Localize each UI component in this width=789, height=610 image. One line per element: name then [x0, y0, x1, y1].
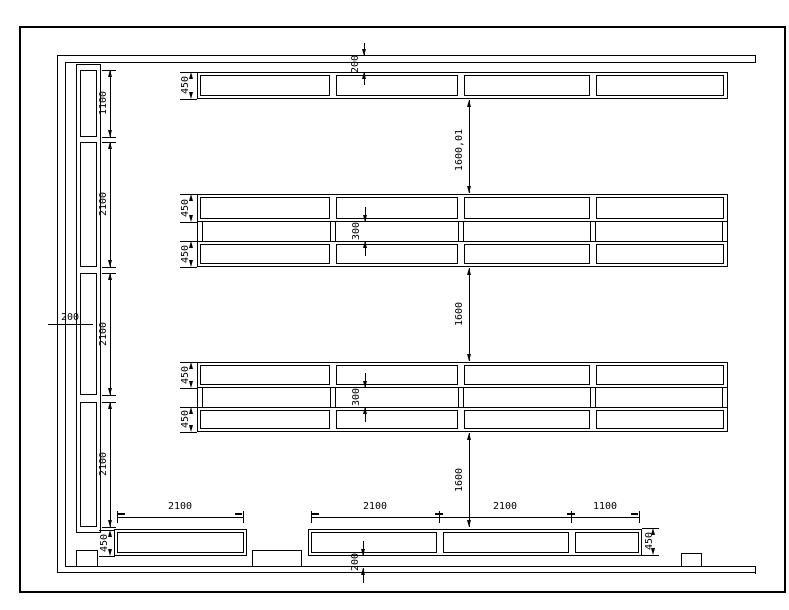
- arrowhead-up-icon: [362, 72, 366, 79]
- rack-bay: [464, 244, 590, 264]
- back-connector: [197, 388, 203, 407]
- dim-line: [117, 517, 243, 518]
- dim-line: [110, 402, 111, 527]
- dim-label-left-rack-1: 1100: [99, 73, 109, 133]
- dim-tick: [567, 513, 575, 515]
- dim-label-depth-row1: 450: [181, 55, 191, 115]
- extension-line: [102, 137, 116, 138]
- arrowhead-up-icon: [361, 568, 365, 575]
- arrowhead-down-icon: [467, 186, 471, 193]
- rack-bay: [464, 365, 590, 385]
- dim-line: [469, 268, 470, 361]
- extension-line: [243, 511, 244, 523]
- dim-line: [48, 324, 93, 325]
- arrowhead-down-icon: [363, 215, 367, 222]
- arrowhead-up-icon: [467, 100, 471, 107]
- dim-label-left-rack-2: 2100: [99, 174, 109, 234]
- dim-line: [469, 433, 470, 527]
- dim-line: [110, 142, 111, 267]
- dim-tick: [235, 513, 242, 515]
- back-connector: [458, 222, 464, 241]
- dim-line: [110, 70, 111, 137]
- rack-bay: [200, 197, 330, 219]
- dim-label-depth-bottom-left: 450: [100, 513, 110, 573]
- arrowhead-up-icon: [108, 402, 112, 409]
- dim-label-aisle-3: 1600: [455, 450, 465, 510]
- dim-label-back-gap-row2: 300: [352, 201, 362, 261]
- arrowhead-down-icon: [362, 49, 366, 56]
- arrowhead-up-icon: [467, 268, 471, 275]
- dim-label-depth-bottom-right: 450: [645, 511, 655, 571]
- back-connector: [330, 388, 336, 407]
- back-connector: [722, 222, 728, 241]
- extension-line: [639, 511, 640, 523]
- back-connector: [458, 388, 464, 407]
- rack-bay: [464, 197, 590, 219]
- dim-label-left-rack-4: 2100: [99, 434, 109, 494]
- room-wall-inner-line: [65, 62, 756, 567]
- dim-label-bottom-clearance: 200: [351, 532, 361, 592]
- back-connector: [590, 388, 596, 407]
- left-rack-bay: [80, 142, 97, 267]
- column-block: [252, 550, 302, 567]
- back-connector: [197, 222, 203, 241]
- dim-label-top-clearance: 200: [351, 34, 361, 94]
- arrowhead-down-icon: [108, 260, 112, 267]
- dim-label-depth-row2-back: 450: [181, 224, 191, 284]
- wall-end-cap-top: [755, 55, 756, 63]
- arrowhead-down-icon: [108, 388, 112, 395]
- dim-line: [311, 517, 639, 518]
- dim-tick: [435, 513, 443, 515]
- cad-drawing-canvas: 200 1600,01 1600 1600 300 300 200 200 11…: [0, 0, 789, 610]
- dim-label-back-gap-row3: 300: [352, 367, 362, 427]
- dim-tick: [312, 513, 319, 515]
- rack-bay: [596, 75, 724, 96]
- left-rack-bay: [80, 273, 97, 395]
- rack-bay: [596, 410, 724, 429]
- back-connector: [330, 222, 336, 241]
- rack-bay: [464, 75, 590, 96]
- dim-line: [110, 273, 111, 395]
- back-connector: [722, 388, 728, 407]
- dim-line: [469, 100, 470, 193]
- arrowhead-up-icon: [108, 273, 112, 280]
- extension-line: [102, 395, 116, 396]
- dim-label-bottom-bay-4: 1100: [571, 502, 639, 512]
- arrowhead-up-icon: [363, 241, 367, 248]
- rack-bay: [443, 532, 569, 553]
- arrowhead-down-icon: [361, 549, 365, 556]
- dim-label-left-rack-3: 2100: [99, 304, 109, 364]
- left-rack-bay: [80, 402, 97, 527]
- dim-label-depth-row3-back: 450: [181, 389, 191, 449]
- dim-tick: [118, 513, 125, 515]
- arrowhead-up-icon: [108, 142, 112, 149]
- extension-line: [102, 267, 116, 268]
- rack-bay: [596, 244, 724, 264]
- arrowhead-up-icon: [467, 433, 471, 440]
- rack-bay: [596, 197, 724, 219]
- arrowhead-down-icon: [467, 520, 471, 527]
- arrowhead-down-icon: [467, 354, 471, 361]
- rack-bay: [117, 532, 244, 553]
- rack-bay: [575, 532, 639, 553]
- back-connector: [590, 222, 596, 241]
- dim-label-bottom-bay-3: 2100: [439, 502, 571, 512]
- rack-bay: [200, 365, 330, 385]
- rack-bay: [200, 75, 330, 96]
- dim-label-bottom-bay-1: 2100: [117, 502, 243, 512]
- dim-label-left-clearance: 200: [48, 313, 92, 323]
- dim-label-aisle-2: 1600: [455, 284, 465, 344]
- dim-label-aisle-1: 1600,01: [455, 120, 465, 180]
- column-block: [681, 553, 702, 567]
- wall-end-cap-bottom: [755, 566, 756, 574]
- arrowhead-up-icon: [363, 407, 367, 414]
- arrowhead-down-icon: [363, 381, 367, 388]
- dim-label-bottom-bay-2: 2100: [311, 502, 439, 512]
- dim-tick: [631, 513, 638, 515]
- rack-bay: [596, 365, 724, 385]
- column-block: [76, 550, 98, 567]
- left-rack-bay: [80, 70, 97, 137]
- rack-bay: [200, 410, 330, 429]
- rack-bay: [464, 410, 590, 429]
- rack-bay: [200, 244, 330, 264]
- rack-bay: [311, 532, 437, 553]
